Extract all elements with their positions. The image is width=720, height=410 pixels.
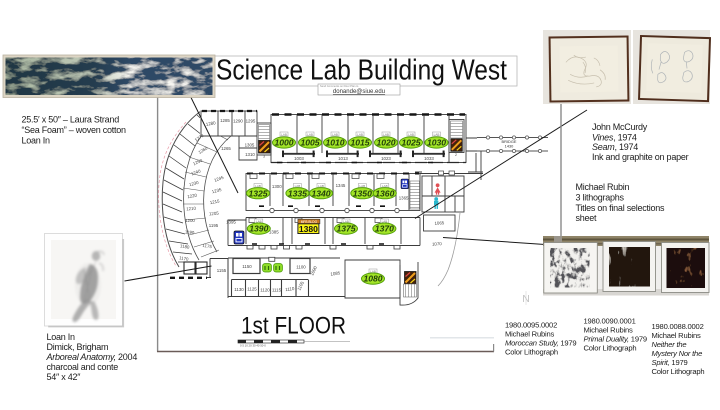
- svg-text:0 5 10 20 30 40: 0 5 10 20 30 40 50-0: [240, 344, 266, 348]
- svg-text:1010: 1010: [325, 138, 344, 148]
- svg-text:Michael Rubins: Michael Rubins: [584, 326, 634, 335]
- svg-text:John McCurdy: John McCurdy: [592, 122, 648, 132]
- svg-text:1005: 1005: [300, 138, 319, 148]
- svg-text:1025: 1025: [401, 138, 420, 148]
- svg-text:charcoal and conte: charcoal and conte: [47, 362, 119, 372]
- svg-text:Spirit, 1979: Spirit, 1979: [652, 358, 688, 367]
- svg-text:2: 2: [455, 153, 457, 157]
- svg-text:1150: 1150: [242, 264, 252, 269]
- svg-text:1375: 1375: [336, 224, 355, 234]
- svg-text:1080: 1080: [363, 274, 382, 284]
- svg-text:1980.0088.0002: 1980.0088.0002: [652, 322, 704, 331]
- svg-text:Michael Rubins: Michael Rubins: [652, 331, 702, 340]
- svg-text:1065: 1065: [434, 220, 445, 226]
- svg-text:1023: 1023: [381, 156, 391, 161]
- svg-text:25.5′ x 50″ – Laura Strand: 25.5′ x 50″ – Laura Strand: [22, 115, 120, 125]
- svg-text:1030: 1030: [427, 138, 446, 148]
- svg-text:1390: 1390: [249, 224, 268, 234]
- svg-text:Michael Rubin: Michael Rubin: [576, 182, 630, 192]
- svg-text:Loan In: Loan In: [22, 136, 51, 146]
- svg-text:1100: 1100: [296, 265, 306, 270]
- svg-text:1033: 1033: [424, 156, 434, 161]
- svg-text:1205: 1205: [209, 211, 220, 217]
- svg-text:1395: 1395: [226, 220, 236, 225]
- svg-text:1285: 1285: [220, 118, 230, 123]
- svg-text:1013: 1013: [338, 156, 348, 161]
- svg-text:1300: 1300: [272, 184, 282, 189]
- svg-text:1st FLOOR: 1st FLOOR: [241, 313, 346, 340]
- svg-text:1115: 1115: [272, 288, 282, 293]
- svg-text:donande@siue.edu: donande@siue.edu: [333, 89, 385, 95]
- svg-text:1125: 1125: [247, 287, 257, 292]
- svg-text:1290: 1290: [233, 119, 243, 124]
- svg-text:1430: 1430: [505, 144, 514, 149]
- svg-text:1380: 1380: [299, 224, 318, 234]
- svg-text:54″ x 42″: 54″ x 42″: [47, 372, 82, 382]
- svg-text:1020: 1020: [376, 138, 395, 148]
- svg-text:1385: 1385: [269, 230, 279, 235]
- svg-text:Vines, 1974: Vines, 1974: [592, 133, 637, 143]
- svg-text:Mystery Nor the: Mystery Nor the: [652, 349, 703, 358]
- svg-text:3: 3: [263, 155, 265, 159]
- svg-text:1370: 1370: [375, 224, 394, 234]
- svg-text:Neither the: Neither the: [652, 340, 687, 349]
- svg-text:1003: 1003: [294, 156, 304, 161]
- svg-text:1980.0095.0002: 1980.0095.0002: [505, 321, 557, 330]
- svg-text:“Sea Foam” – woven cotton: “Sea Foam” – woven cotton: [22, 125, 127, 135]
- svg-text:Michael Rubins: Michael Rubins: [505, 330, 555, 339]
- svg-text:Loan In: Loan In: [47, 332, 76, 342]
- svg-text:1340: 1340: [311, 188, 330, 198]
- svg-text:1295: 1295: [246, 119, 256, 124]
- svg-text:1325: 1325: [248, 188, 267, 198]
- svg-text:1000: 1000: [274, 138, 293, 148]
- svg-text:1345: 1345: [336, 183, 346, 188]
- svg-text:1200: 1200: [185, 218, 195, 223]
- svg-text:sheet: sheet: [576, 213, 598, 223]
- svg-text:1120: 1120: [260, 288, 270, 293]
- svg-text:1310: 1310: [245, 152, 255, 157]
- svg-text:1365: 1365: [399, 196, 409, 201]
- svg-text:1155: 1155: [217, 268, 227, 273]
- svg-text:1195: 1195: [209, 223, 219, 228]
- svg-text:Color Lithograph: Color Lithograph: [652, 367, 705, 376]
- svg-text:Color Lithograph: Color Lithograph: [584, 344, 637, 353]
- svg-text:1210: 1210: [186, 206, 197, 212]
- svg-text:1265: 1265: [221, 146, 231, 151]
- svg-text:Color Lithograph: Color Lithograph: [505, 348, 558, 357]
- svg-text:1190: 1190: [185, 229, 195, 235]
- svg-text:Moroccan Study, 1979: Moroccan Study, 1979: [505, 339, 576, 348]
- svg-text:Ink and graphite on paper: Ink and graphite on paper: [592, 152, 689, 162]
- svg-text:1360: 1360: [375, 188, 394, 198]
- svg-text:1130: 1130: [234, 287, 244, 292]
- svg-text:Arboreal Anatomy, 2004: Arboreal Anatomy, 2004: [46, 352, 138, 362]
- svg-text:1015: 1015: [350, 138, 369, 148]
- svg-text:1070: 1070: [432, 241, 443, 247]
- svg-text:1980.0090.0001: 1980.0090.0001: [584, 317, 636, 326]
- svg-text:Dimick, Brigham: Dimick, Brigham: [47, 342, 109, 352]
- svg-text:1305: 1305: [245, 142, 255, 147]
- svg-text:Science Lab Building West: Science Lab Building West: [216, 55, 507, 87]
- svg-text:Seam, 1974: Seam, 1974: [592, 142, 638, 152]
- svg-text:Titles on final selections: Titles on final selections: [576, 203, 665, 213]
- svg-text:Primal Duality, 1979: Primal Duality, 1979: [584, 335, 647, 344]
- svg-text:1335: 1335: [288, 188, 307, 198]
- svg-text:3 lithographs: 3 lithographs: [576, 192, 625, 202]
- svg-text:1350: 1350: [353, 188, 372, 198]
- svg-text:Send Comments on Floor Plan to: Send Comments on Floor Plan to: [320, 84, 359, 88]
